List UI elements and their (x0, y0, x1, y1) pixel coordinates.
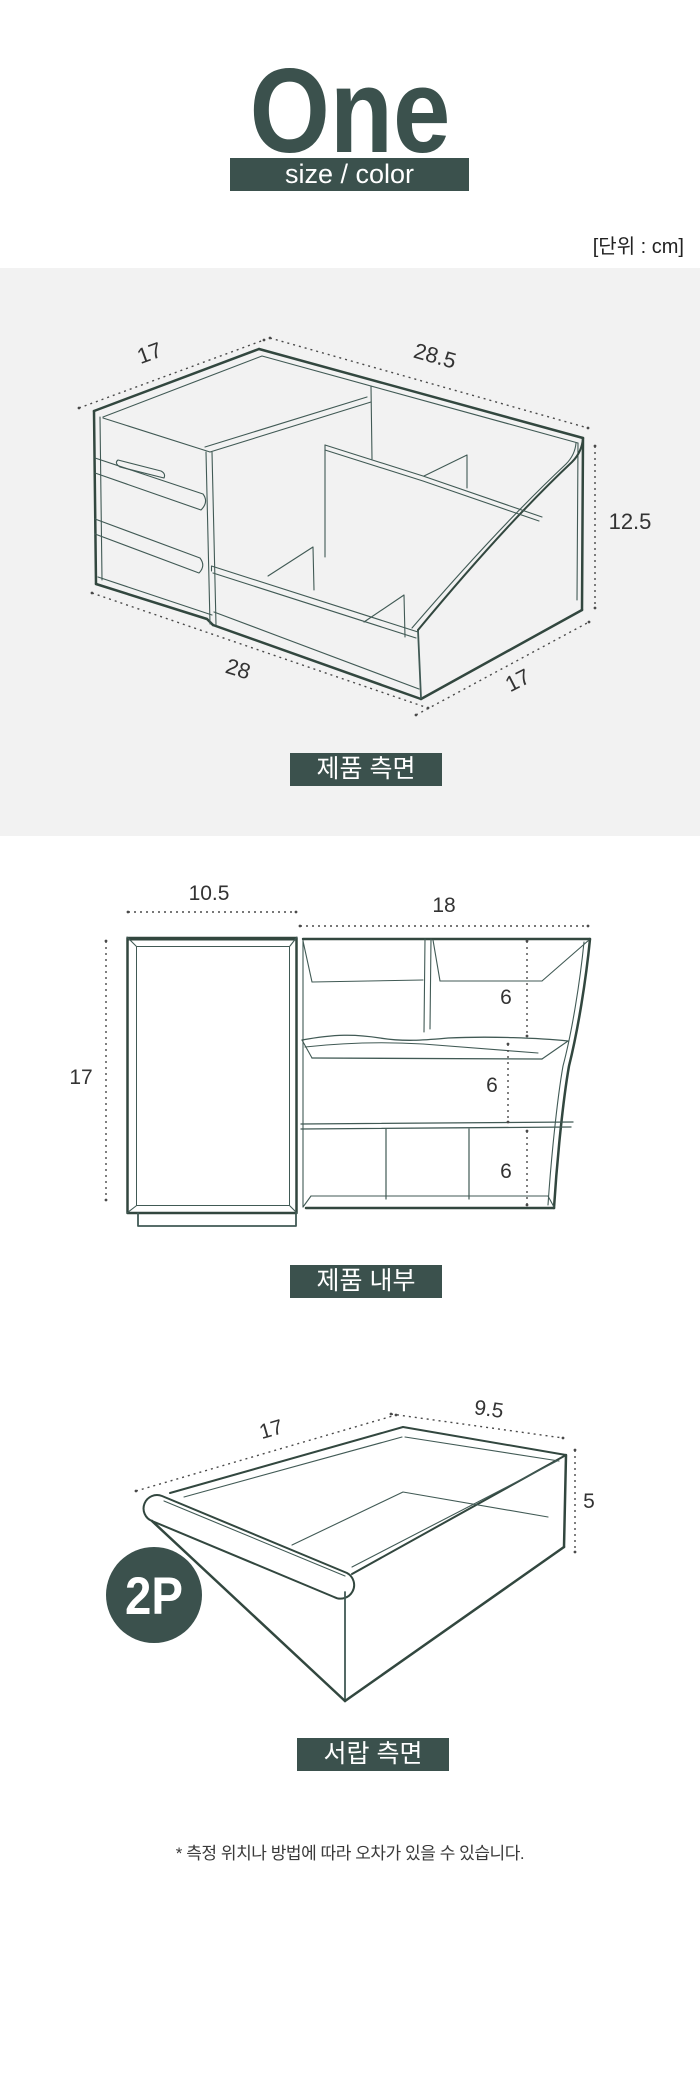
svg-text:17: 17 (257, 1415, 286, 1444)
svg-text:18: 18 (432, 894, 455, 917)
svg-text:12.5: 12.5 (609, 509, 652, 534)
svg-text:28.5: 28.5 (411, 338, 459, 374)
svg-text:6: 6 (486, 1074, 498, 1097)
svg-text:28: 28 (223, 653, 254, 684)
svg-text:5: 5 (583, 1490, 595, 1513)
svg-text:2P: 2P (125, 1567, 183, 1626)
svg-text:17: 17 (69, 1066, 92, 1089)
svg-text:17: 17 (134, 337, 166, 369)
svg-text:6: 6 (500, 986, 512, 1009)
svg-text:9.5: 9.5 (473, 1396, 505, 1423)
svg-text:10.5: 10.5 (189, 882, 230, 905)
svg-text:6: 6 (500, 1160, 512, 1183)
svg-text:17: 17 (501, 664, 534, 697)
